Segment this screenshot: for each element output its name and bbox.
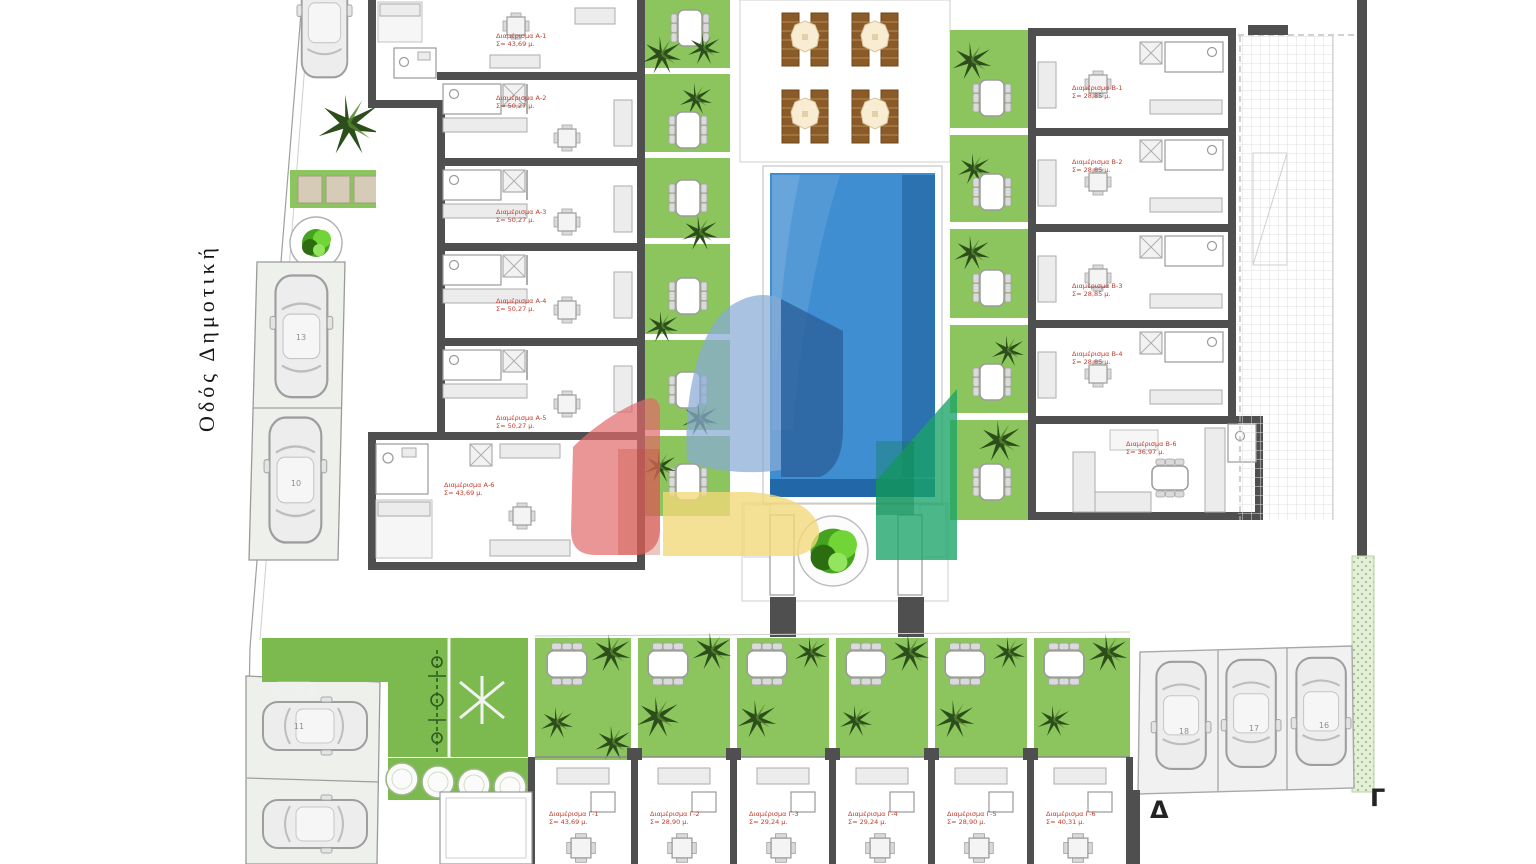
car-icon — [297, 0, 352, 77]
building-c — [440, 748, 1140, 864]
section-marker-gamma: Γ — [1370, 784, 1385, 812]
parking-number: 10 — [291, 479, 301, 488]
street-label: Οδός Δημοτική — [194, 244, 219, 432]
parking-number: 11 — [294, 722, 304, 731]
unit-label: Διαμέρισμα Α-2 — [496, 94, 546, 102]
parking-number: 13 — [296, 333, 306, 342]
unit-area: Σ= 43,69 μ. — [496, 40, 535, 48]
logo-red-overlay — [618, 449, 660, 555]
car-icon — [263, 697, 367, 755]
lounger-icon — [782, 13, 828, 66]
unit-label: Διαμέρισμα Β-4 — [1072, 350, 1122, 358]
unit-area: Σ= 28,85 μ. — [1072, 358, 1111, 366]
unit-area: Σ= 40,31 μ. — [1046, 818, 1085, 826]
section-marker-delta: Δ — [1150, 796, 1169, 824]
unit-label: Διαμέρισμα Α-6 — [444, 481, 494, 489]
parking-street-column: 13 10 — [249, 262, 345, 560]
unit-label: Διαμέρισμα Γ-3 — [749, 810, 799, 818]
unit-area: Σ= 43,69 μ. — [549, 818, 588, 826]
unit-label: Διαμέρισμα Β-1 — [1072, 84, 1122, 92]
unit-area: Σ= 28,85 μ. — [1072, 290, 1111, 298]
unit-label: Διαμέρισμα Α-1 — [496, 32, 546, 40]
unit-area: Σ= 50,27 μ. — [496, 422, 535, 430]
car-icon — [1291, 658, 1351, 765]
unit-area: Σ= 43,69 μ. — [444, 489, 483, 497]
unit-area: Σ= 28,85 μ. — [1072, 92, 1111, 100]
unit-area: Σ= 50,27 μ. — [496, 216, 535, 224]
unit-label: Διαμέρισμα Α-5 — [496, 414, 546, 422]
unit-area: Σ= 50,27 μ. — [496, 305, 535, 313]
unit-area: Σ= 28,90 μ. — [650, 818, 689, 826]
unit-label: Διαμέρισμα Γ-2 — [650, 810, 700, 818]
unit-area: Σ= 29,24 μ. — [749, 818, 788, 826]
unit-label: Διαμέρισμα Γ-4 — [848, 810, 898, 818]
parking-bottom-left: 11 — [246, 676, 380, 864]
hedge-strip — [1352, 556, 1374, 792]
unit-label: Διαμέρισμα Β-6 — [1126, 440, 1176, 448]
unit-area: Σ= 50,27 μ. — [496, 102, 535, 110]
car-icon — [1151, 662, 1211, 769]
car-icon — [263, 795, 367, 853]
unit-label: Διαμέρισμα Α-4 — [496, 297, 546, 305]
unit-area: Σ= 28,85 μ. — [1072, 166, 1111, 174]
unit-label: Διαμέρισμα Β-3 — [1072, 282, 1122, 290]
car-icon — [1221, 660, 1281, 767]
lounger-icon — [852, 13, 898, 66]
parking-number: 17 — [1249, 724, 1259, 733]
east-terrace — [1238, 0, 1367, 558]
lounger-icon — [782, 90, 828, 143]
unit-label: Διαμέρισμα Α-3 — [496, 208, 546, 216]
unit-label: Διαμέρισμα Β-2 — [1072, 158, 1122, 166]
unit-label: Διαμέρισμα Γ-1 — [549, 810, 599, 818]
parking-number: 16 — [1319, 721, 1329, 730]
pool-deck — [740, 0, 950, 162]
logo-green-overlay — [876, 441, 914, 515]
parking-bottom-right: 18 17 16 — [1138, 646, 1354, 794]
unit-label: Διαμέρισμα Γ-5 — [947, 810, 997, 818]
site-plan: Οδός Δημοτική 13 10 11 — [0, 0, 1536, 864]
lounger-icon — [852, 90, 898, 143]
unit-area: Σ= 29,24 μ. — [848, 818, 887, 826]
parking-number: 18 — [1179, 727, 1189, 736]
site-plan-drawing: Οδός Δημοτική 13 10 11 — [0, 0, 1536, 864]
unit-area: Σ= 28,90 μ. — [947, 818, 986, 826]
unit-area: Σ= 36,97 μ. — [1126, 448, 1165, 456]
unit-label: Διαμέρισμα Γ-6 — [1046, 810, 1096, 818]
